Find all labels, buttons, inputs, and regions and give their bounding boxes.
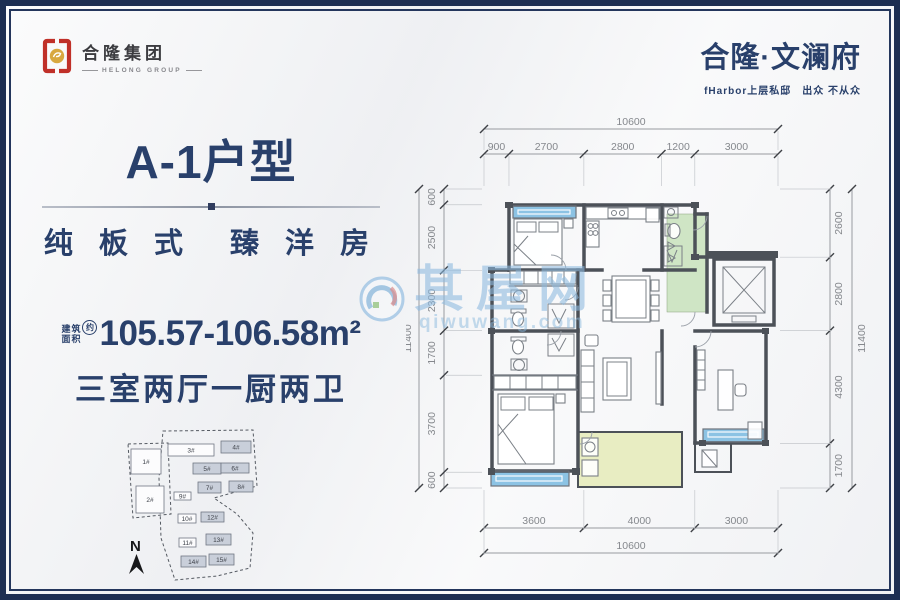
svg-text:11400: 11400 [856,324,868,353]
balcony-cabinet [582,460,598,476]
room-configuration: 三室两厅一厨两卫 [36,364,386,409]
site-building-label: 5# [203,466,211,473]
site-building-label: 7# [206,485,214,492]
north-label: N [130,538,141,555]
site-building-label: 14# [188,559,199,566]
svg-text:1700: 1700 [426,341,438,365]
svg-text:3000: 3000 [725,515,749,527]
unit-tagline: 纯 板 式 臻 洋 房 [36,220,386,262]
desk-chair [735,384,746,396]
area-prefix-bottom: 面积 [61,334,81,344]
vanity-cabinet [510,271,576,284]
master-bath-shower [548,334,574,356]
zone-master-window [491,472,569,486]
project-slogan: fHarbor上层私邸 出众 不从众 [700,82,861,97]
floorplan-poster: 合隆集团 HELONG GROUP 合隆·文澜府 fHarbor上层私邸 出众 … [0,0,900,600]
site-building-label: 15# [216,557,227,564]
area-row: 建筑 面积 约 105.57-106.58m² [36,314,386,354]
svg-text:900: 900 [488,141,506,153]
site-building-label: 12# [207,514,218,521]
dining-table [612,276,650,322]
site-building-label: 13# [213,537,224,544]
company-logo: 合隆集团 HELONG GROUP [40,36,202,76]
project-name: 合隆·文澜府 [700,34,861,76]
project-branding: 合隆·文澜府 fHarbor上层私邸 出众 不从众 [700,34,861,97]
unit-info-panel: A-1户型 纯 板 式 臻 洋 房 建筑 面积 约 105.57-106.58m… [36,126,386,409]
svg-text:3600: 3600 [522,515,546,527]
site-building-label: 3# [187,447,195,454]
svg-text:2700: 2700 [535,141,559,153]
title-divider [42,206,380,208]
company-name-en-row: HELONG GROUP [82,67,202,74]
svg-text:4300: 4300 [833,375,845,399]
svg-text:3000: 3000 [725,141,749,153]
site-building-label: 4# [232,444,240,451]
svg-text:2800: 2800 [611,141,635,153]
site-building-label: 10# [182,516,193,523]
company-name-en: HELONG GROUP [102,67,182,74]
bed-secondary [514,219,562,265]
area-value: 105.57-106.58m² [99,314,360,354]
bed-master [498,394,554,464]
tv-cabinet [656,352,661,404]
area-approx-badge: 约 [82,320,97,335]
svg-text:2600: 2600 [833,211,845,235]
site-building-label: 11# [182,540,193,547]
area-prefix-top: 建筑 [61,324,81,334]
site-building-label: 6# [231,465,239,472]
armchair [585,335,598,346]
site-building-label: 8# [237,484,245,491]
site-building-label: 9# [179,493,187,500]
site-building-label: 1# [142,459,150,466]
company-name: 合隆集团 [82,39,202,64]
svg-text:1700: 1700 [833,454,845,478]
elevator [708,251,778,325]
dimension-annotations: 9002700280012003000106003600400030001060… [406,116,868,557]
svg-text:10600: 10600 [616,116,645,128]
svg-text:3700: 3700 [426,412,438,436]
svg-text:600: 600 [426,471,438,489]
area-prefix: 建筑 面积 [61,324,81,344]
floor-plan: 9002700280012003000106003600400030001060… [406,104,896,600]
svg-text:11400: 11400 [406,324,414,353]
north-arrow-icon [129,554,144,574]
svg-text:600: 600 [426,188,438,206]
zone-bedroom2-window [513,206,576,218]
bath1-toilet [513,312,524,326]
svg-text:2800: 2800 [833,282,845,306]
master-bath-sink [514,360,525,371]
svg-text:1200: 1200 [666,141,690,153]
divider-dot [208,203,215,210]
sofa [581,350,594,412]
svg-text:2500: 2500 [426,226,438,250]
svg-text:2300: 2300 [426,289,438,313]
bedroom3-cabinet [748,422,762,439]
master-wardrobe [494,376,576,389]
kitchen-fridge [646,208,659,222]
desk [718,370,733,410]
unit-title: A-1户型 [36,126,386,192]
washer [582,438,598,456]
site-buildings: 1#2#3#4#5#6#7#8#9#10#12#11#13#14#15# [131,441,253,567]
svg-text:4000: 4000 [628,515,652,527]
site-plan: 1#2#3#4#5#6#7#8#9#10#12#11#13#14#15# N [101,418,316,600]
svg-text:10600: 10600 [616,540,645,552]
bath1-sink [514,291,525,302]
site-building-label: 2# [146,497,154,504]
bath1-shower [548,304,574,328]
company-logo-icon [40,36,74,76]
master-bath-toilet [513,340,524,354]
